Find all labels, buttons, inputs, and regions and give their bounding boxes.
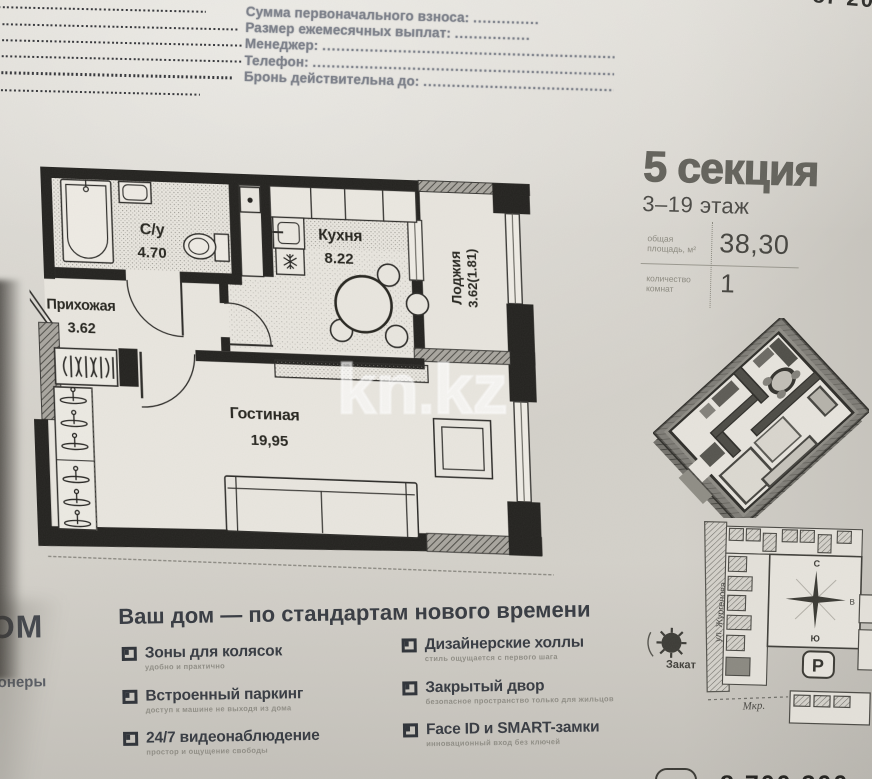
svg-text:Закат: Закат <box>666 659 697 672</box>
svg-text:Гостиная: Гостиная <box>229 405 299 425</box>
svg-text:С: С <box>813 558 820 568</box>
svg-text:В: В <box>849 597 855 606</box>
svg-text:Ю: Ю <box>811 633 821 643</box>
svg-text:Мкр.: Мкр. <box>741 700 765 713</box>
svg-text:Кухня: Кухня <box>318 227 362 246</box>
svg-text:4.70: 4.70 <box>137 244 167 262</box>
svg-text:Прихожая: Прихожая <box>46 297 116 316</box>
svg-text:8.22: 8.22 <box>324 250 354 268</box>
svg-text:19,95: 19,95 <box>250 432 288 450</box>
svg-text:3.62(1.81): 3.62(1.81) <box>464 248 481 308</box>
svg-text:С/у: С/у <box>140 221 166 239</box>
svg-text:P: P <box>812 655 825 675</box>
svg-text:3.62: 3.62 <box>67 320 96 337</box>
svg-text:Лоджия: Лоджия <box>447 250 465 304</box>
